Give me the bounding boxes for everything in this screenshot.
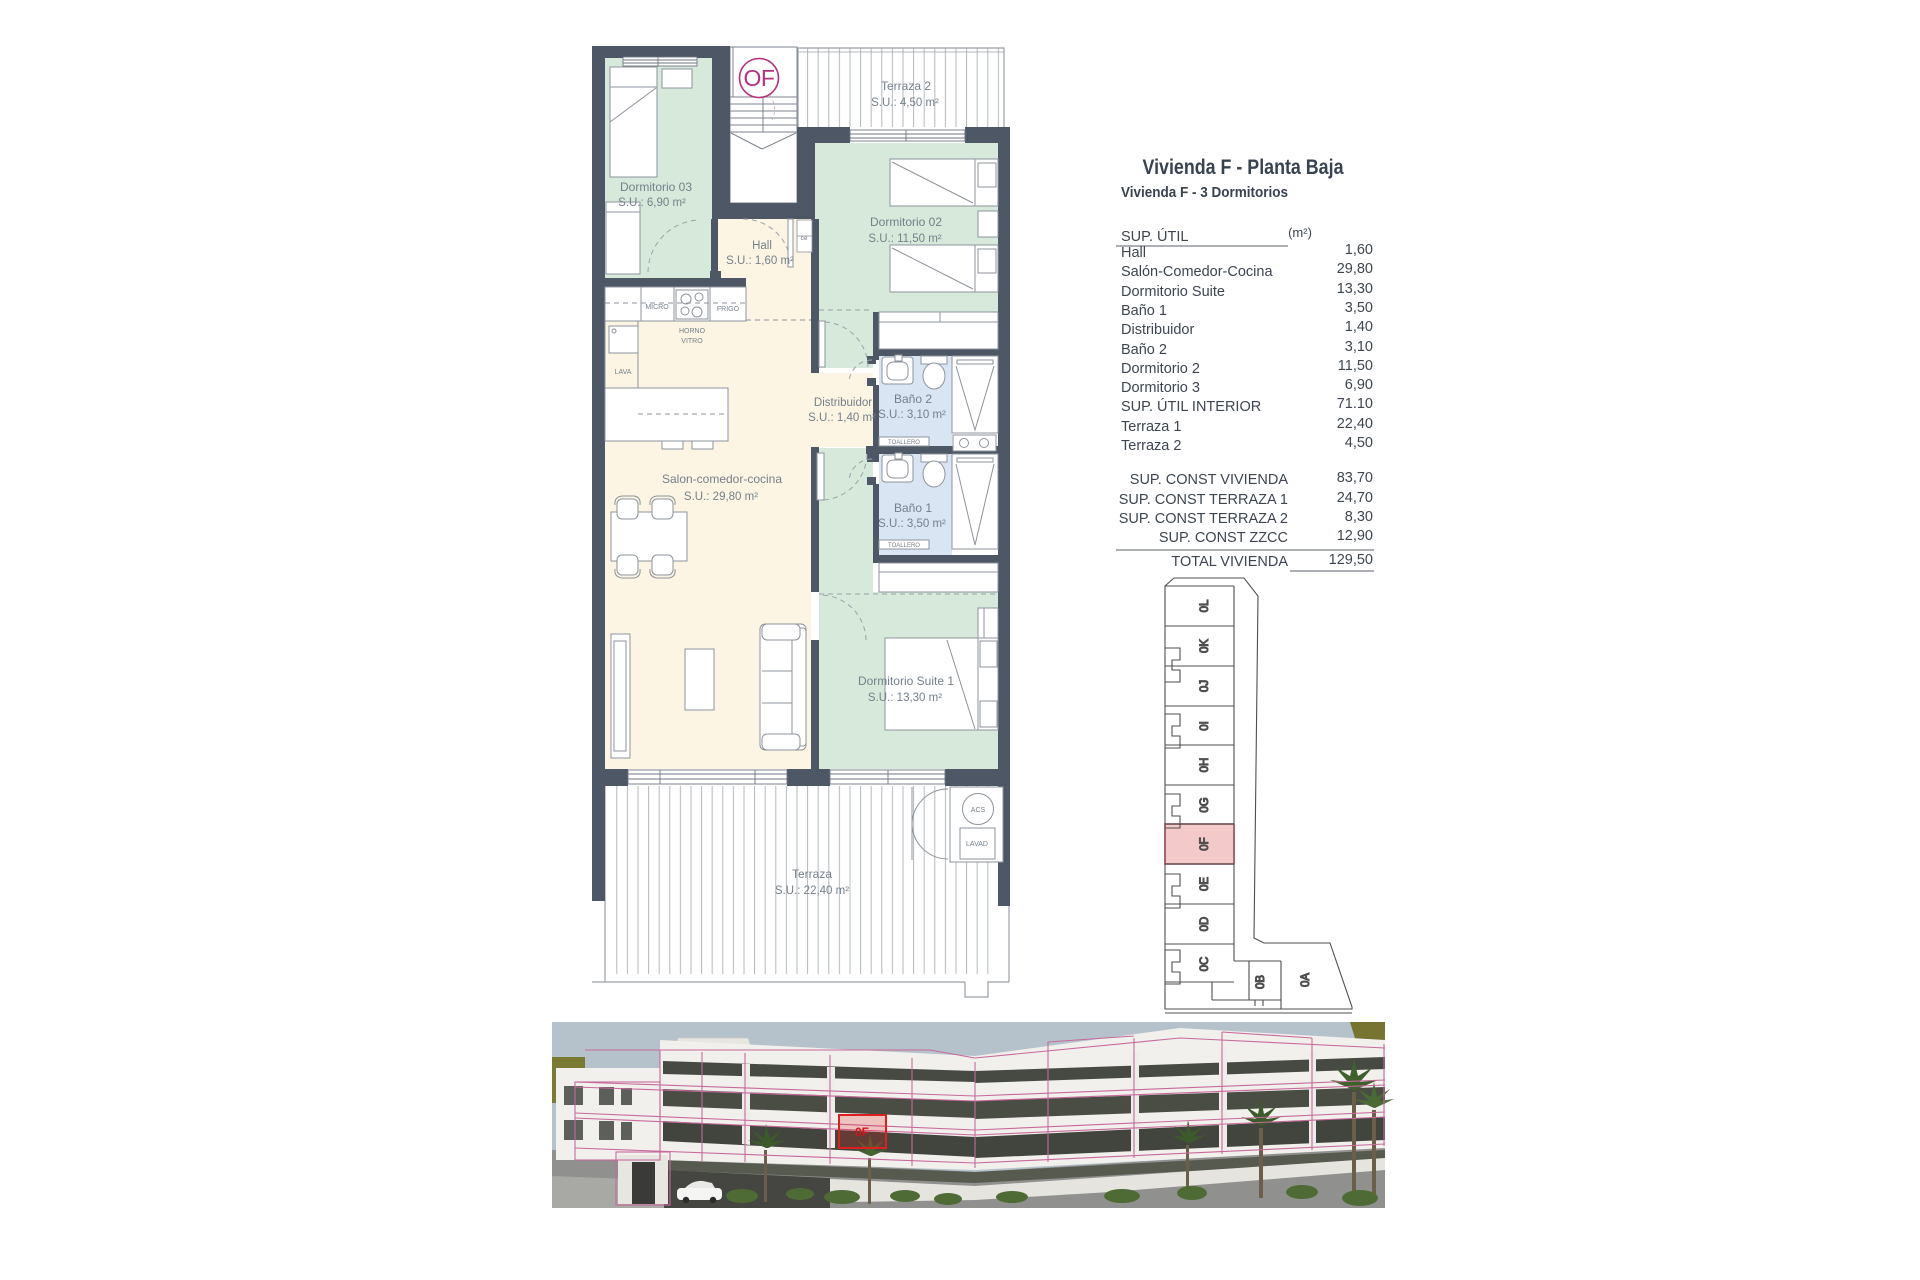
- svg-text:71.10: 71.10: [1337, 396, 1373, 412]
- svg-text:6,90: 6,90: [1345, 377, 1373, 393]
- svg-text:0A: 0A: [1300, 973, 1312, 987]
- svg-text:0K: 0K: [1199, 639, 1211, 653]
- svg-text:Baño 2: Baño 2: [1121, 342, 1167, 358]
- svg-text:0B: 0B: [1255, 975, 1267, 989]
- svg-text:SUP. CONST ZZCC: SUP. CONST ZZCC: [1159, 530, 1288, 546]
- svg-text:SUP. ÚTIL: SUP. ÚTIL: [1121, 228, 1188, 245]
- svg-text:Dormitorio 02: Dormitorio 02: [870, 215, 942, 229]
- svg-text:S.U.: 6,90 m²: S.U.: 6,90 m²: [618, 197, 686, 209]
- svg-text:S.U.: 29,80 m²: S.U.: 29,80 m²: [684, 491, 758, 503]
- svg-text:S.U.: 3,10 m²: S.U.: 3,10 m²: [878, 409, 946, 421]
- svg-text:1,60: 1,60: [1345, 242, 1373, 258]
- svg-text:S.U.: 22,40 m²: S.U.: 22,40 m²: [775, 885, 849, 897]
- svg-text:Terraza 1: Terraza 1: [1121, 419, 1181, 435]
- svg-text:Baño 2: Baño 2: [894, 392, 932, 406]
- svg-text:0D: 0D: [1199, 917, 1211, 932]
- svg-text:SUP. CONST TERRAZA 1: SUP. CONST TERRAZA 1: [1119, 492, 1288, 508]
- svg-text:0L: 0L: [1199, 599, 1211, 612]
- svg-text:4,50: 4,50: [1345, 435, 1373, 451]
- svg-text:ACS: ACS: [971, 807, 986, 814]
- svg-text:Dormitorio 3: Dormitorio 3: [1121, 380, 1200, 396]
- svg-text:0E: 0E: [1199, 877, 1211, 891]
- svg-text:0C: 0C: [1199, 957, 1211, 972]
- svg-text:1,40: 1,40: [1345, 319, 1373, 335]
- svg-text:0F: 0F: [1199, 837, 1211, 850]
- svg-text:Distribuidor: Distribuidor: [814, 397, 872, 409]
- svg-text:MICRO: MICRO: [645, 304, 669, 311]
- svg-text:SUP. ÚTIL INTERIOR: SUP. ÚTIL INTERIOR: [1121, 398, 1261, 415]
- svg-text:Terraza: Terraza: [792, 867, 832, 881]
- svg-text:24,70: 24,70: [1337, 490, 1373, 506]
- svg-text:OF: OF: [744, 65, 775, 91]
- svg-text:29,80: 29,80: [1337, 261, 1373, 277]
- svg-text:Salon-comedor-cocina: Salon-comedor-cocina: [662, 472, 782, 486]
- svg-text:TOTAL VIVIENDA: TOTAL VIVIENDA: [1171, 554, 1288, 570]
- svg-text:Salón-Comedor-Cocina: Salón-Comedor-Cocina: [1121, 264, 1273, 280]
- svg-text:HORNO: HORNO: [679, 328, 706, 335]
- svg-text:11,50: 11,50: [1338, 358, 1373, 374]
- svg-text:Dormitorio Suite 1: Dormitorio Suite 1: [858, 674, 954, 688]
- svg-text:S.U.: 11,50 m²: S.U.: 11,50 m²: [868, 233, 941, 245]
- svg-text:FRIGO: FRIGO: [717, 306, 740, 313]
- svg-text:(m²): (m²): [1288, 225, 1312, 240]
- svg-text:ce: ce: [801, 235, 808, 242]
- svg-text:LAVA: LAVA: [615, 369, 632, 376]
- svg-text:Vivienda F - Planta Baja: Vivienda F - Planta Baja: [1143, 155, 1345, 179]
- svg-text:0I: 0I: [1199, 721, 1211, 731]
- svg-text:Hall: Hall: [752, 240, 772, 252]
- svg-text:Distribuidor: Distribuidor: [1121, 322, 1194, 338]
- svg-text:SUP. CONST VIVIENDA: SUP. CONST VIVIENDA: [1130, 472, 1289, 488]
- svg-text:S.U.: 3,50 m²: S.U.: 3,50 m²: [878, 518, 946, 530]
- svg-text:TOALLERO: TOALLERO: [888, 543, 920, 549]
- svg-text:0H: 0H: [1199, 758, 1211, 773]
- svg-text:LAVAD: LAVAD: [966, 841, 988, 848]
- svg-text:83,70: 83,70: [1337, 470, 1373, 486]
- svg-text:0J: 0J: [1199, 680, 1211, 692]
- svg-text:Dormitorio 03: Dormitorio 03: [620, 180, 692, 194]
- svg-text:3,50: 3,50: [1345, 300, 1373, 316]
- svg-text:8,30: 8,30: [1345, 509, 1373, 525]
- svg-text:22,40: 22,40: [1337, 416, 1373, 432]
- svg-text:S.U.: 1,60 m²: S.U.: 1,60 m²: [726, 255, 794, 267]
- svg-text:Terraza 2: Terraza 2: [881, 79, 931, 93]
- svg-text:Hall: Hall: [1121, 245, 1146, 261]
- svg-text:Dormitorio 2: Dormitorio 2: [1121, 361, 1200, 377]
- svg-text:12,90: 12,90: [1337, 528, 1373, 544]
- svg-text:13,30: 13,30: [1337, 281, 1373, 297]
- svg-text:Terraza 2: Terraza 2: [1121, 438, 1181, 454]
- svg-text:VITRO: VITRO: [681, 338, 703, 345]
- svg-text:Baño 1: Baño 1: [1121, 303, 1167, 319]
- svg-text:Vivienda F - 3 Dormitorios: Vivienda F - 3 Dormitorios: [1121, 184, 1288, 201]
- svg-text:S.U.: 13,30 m²: S.U.: 13,30 m²: [868, 692, 942, 704]
- svg-text:3,10: 3,10: [1345, 339, 1373, 355]
- svg-text:0F: 0F: [855, 1125, 869, 1139]
- svg-text:Dormitorio Suite: Dormitorio Suite: [1121, 284, 1225, 300]
- svg-text:0G: 0G: [1199, 797, 1211, 812]
- svg-text:S.U.: 4,50 m²: S.U.: 4,50 m²: [871, 97, 939, 109]
- svg-text:S.U.: 1,40 m²: S.U.: 1,40 m²: [808, 412, 876, 424]
- svg-text:SUP. CONST TERRAZA 2: SUP. CONST TERRAZA 2: [1119, 511, 1288, 527]
- svg-text:Baño 1: Baño 1: [894, 501, 932, 515]
- svg-text:129,50: 129,50: [1329, 552, 1373, 568]
- svg-text:TOALLERO: TOALLERO: [888, 440, 920, 446]
